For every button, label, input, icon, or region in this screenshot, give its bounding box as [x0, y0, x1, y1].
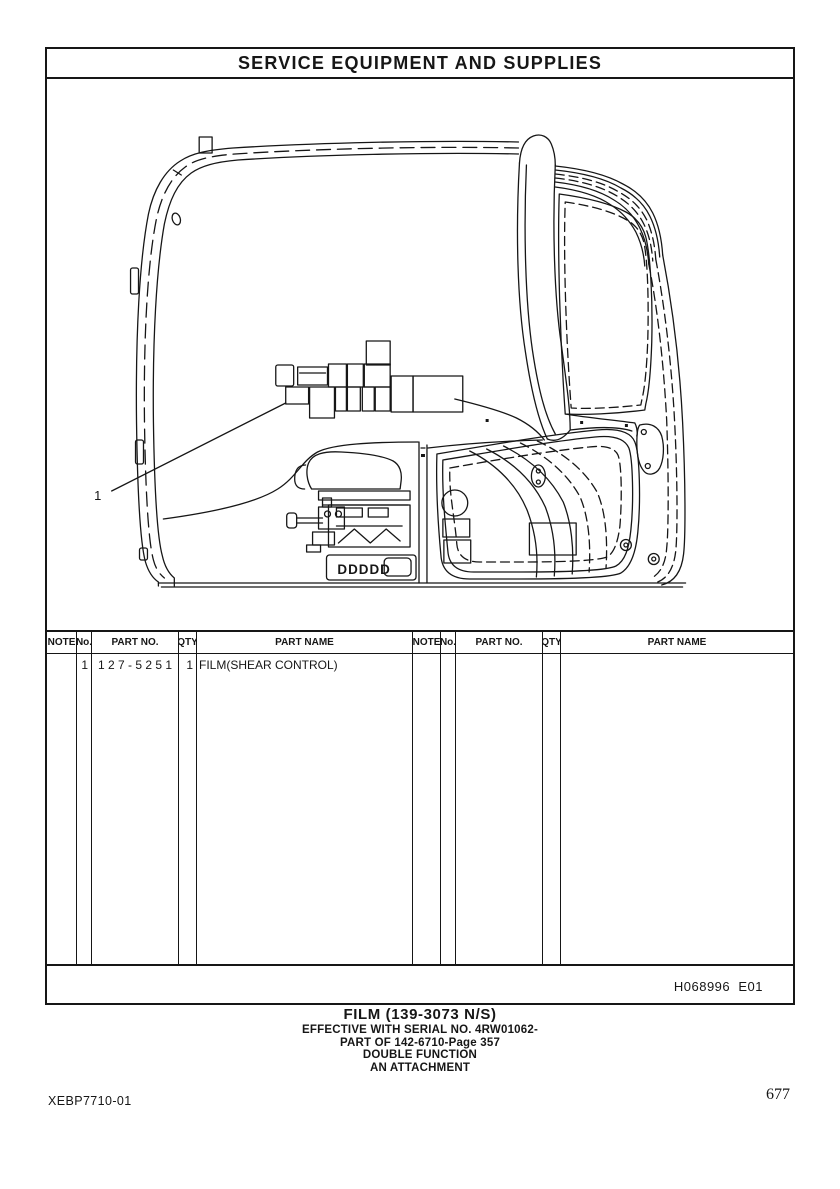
control-lever-knob — [287, 513, 297, 528]
cell-no: 1 — [77, 654, 91, 675]
callout-1-label: 1 — [94, 488, 101, 503]
cell-qty: 1 — [179, 654, 196, 675]
col-header-no: No. — [441, 632, 455, 654]
film-decal-cluster — [276, 341, 463, 418]
col-note-right: NOTE — [412, 632, 440, 964]
page-title: SERVICE EQUIPMENT AND SUPPLIES — [47, 49, 793, 79]
col-qty-right: QTY — [542, 632, 560, 964]
col-no-right: No. — [440, 632, 455, 964]
page-number: 677 — [766, 1086, 790, 1104]
caption-attachment: AN ATTACHMENT — [45, 1062, 795, 1075]
cell-part-name: FILM(SHEAR CONTROL) — [197, 654, 412, 675]
caption-effective-serial: EFFECTIVE WITH SERIAL NO. 4RW01062- — [45, 1024, 795, 1037]
col-header-note: NOTE — [413, 632, 440, 654]
callout-leader-line — [112, 403, 286, 491]
col-header-qty: QTY — [543, 632, 560, 654]
col-part-no-left: PART NO. 1 2 7 - 5 2 5 1 — [91, 632, 178, 964]
frame-footer: H068996 E01 — [47, 966, 793, 1001]
col-no-left: No. 1 — [76, 632, 91, 964]
col-header-part-no: PART NO. — [92, 632, 178, 654]
col-part-no-right: PART NO. — [455, 632, 542, 964]
caption-double-function: DOUBLE FUNCTION — [45, 1049, 795, 1062]
cell-note — [47, 654, 76, 675]
figure-caption: FILM (139-3073 N/S) EFFECTIVE WITH SERIA… — [45, 1007, 795, 1074]
seat-cushion — [307, 452, 401, 489]
page-frame: SERVICE EQUIPMENT AND SUPPLIES — [45, 47, 795, 1005]
col-part-name-right: PART NAME — [560, 632, 793, 964]
col-part-name-left: PART NAME FILM(SHEAR CONTROL) — [196, 632, 412, 964]
caption-part-of: PART OF 142-6710-Page 357 — [45, 1037, 795, 1050]
catalog-page: { "document": { "title": "SERVICE EQUIPM… — [0, 0, 840, 1189]
caption-film-title: FILM (139-3073 N/S) — [45, 1007, 795, 1022]
col-qty-left: QTY 1 — [178, 632, 196, 964]
figure-code: H068996 E01 — [674, 979, 763, 994]
col-header-qty: QTY — [179, 632, 196, 654]
col-note-left: NOTE — [47, 632, 76, 964]
col-header-part-no: PART NO. — [456, 632, 542, 654]
col-header-note: NOTE — [47, 632, 76, 654]
doc-number: XEBP7710-01 — [48, 1094, 132, 1108]
door-window — [559, 194, 652, 414]
vent-slots-text: DDDDD — [337, 562, 390, 577]
door-speaker — [442, 490, 468, 516]
cell-part-no: 1 2 7 - 5 2 5 1 — [92, 654, 178, 675]
drawing-area: DDDDD — [47, 79, 793, 630]
col-header-part-name: PART NAME — [197, 632, 412, 654]
parts-table: NOTE No. 1 PART NO. 1 2 7 - 5 2 5 1 QTY … — [47, 630, 793, 966]
cab-film-location-drawing: DDDDD — [47, 79, 793, 630]
col-header-no: No. — [77, 632, 91, 654]
col-header-part-name: PART NAME — [561, 632, 793, 654]
